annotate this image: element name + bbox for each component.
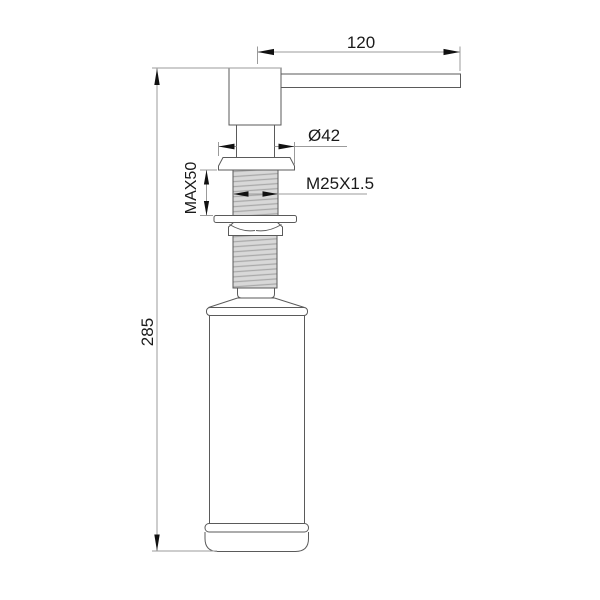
technical-drawing-canvas: 120 Ø42 M25X1.5 MAX50 285 — [0, 0, 600, 600]
thickness-arrow-bottom — [204, 201, 209, 216]
mounting-flange — [219, 158, 295, 171]
bottle-collar — [238, 288, 275, 298]
bottle-body — [210, 316, 305, 524]
pump-neck — [237, 125, 275, 158]
washer — [214, 216, 297, 223]
lower-thread-shank — [233, 236, 277, 289]
thickness-arrow-top — [204, 170, 209, 185]
dimension-lines — [152, 47, 460, 552]
dimension-arrows — [154, 49, 460, 551]
thread-size-label: M25X1.5 — [306, 174, 374, 193]
flange-diameter-label: Ø42 — [308, 126, 340, 145]
overall-height-label: 285 — [138, 318, 157, 346]
reach-arrow-left — [258, 49, 275, 55]
spout-reach-label: 120 — [347, 33, 375, 52]
max-thickness-label: MAX50 — [183, 162, 200, 215]
pump-head — [229, 68, 281, 125]
spout — [281, 74, 461, 88]
height-arrow-bottom — [154, 535, 159, 552]
height-arrow-top — [154, 69, 159, 86]
reach-arrow-right — [444, 49, 461, 55]
bottle-bottom-ridge — [205, 524, 309, 533]
upper-thread-shank — [233, 170, 278, 216]
bottle-top-ridge — [207, 308, 308, 316]
bottle-shoulder — [209, 298, 305, 308]
diameter-arrow-left — [219, 144, 235, 150]
hex-nut — [229, 223, 283, 236]
diameter-arrow-right — [279, 144, 295, 150]
drawing-page: 120 Ø42 M25X1.5 MAX50 285 — [0, 0, 600, 600]
bottle-base — [205, 532, 309, 552]
